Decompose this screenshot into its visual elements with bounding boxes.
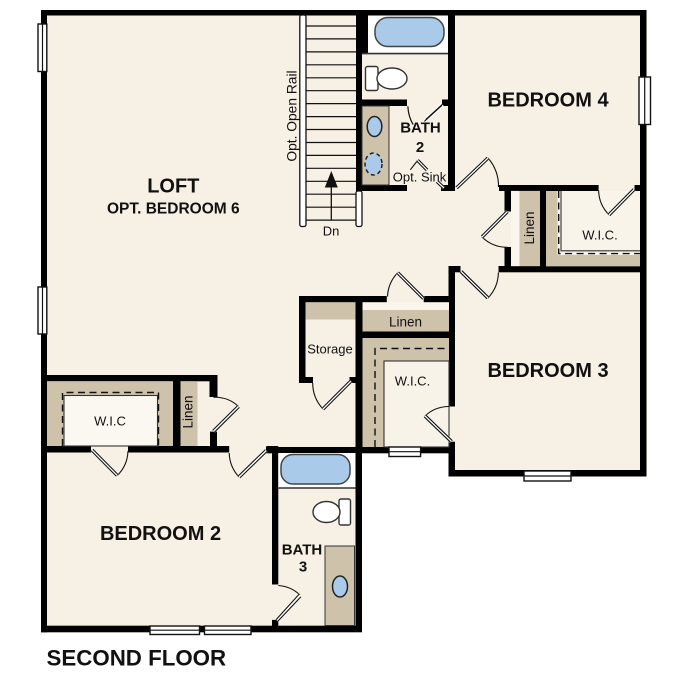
- svg-text:BEDROOM 4: BEDROOM 4: [487, 90, 609, 112]
- svg-text:Linen: Linen: [181, 395, 196, 428]
- svg-text:Linen: Linen: [522, 211, 537, 244]
- svg-text:BATH: BATH: [282, 541, 323, 558]
- svg-text:W.I.C: W.I.C: [94, 414, 126, 429]
- svg-text:SECOND FLOOR: SECOND FLOOR: [47, 646, 227, 671]
- svg-text:W.I.C.: W.I.C.: [582, 228, 617, 243]
- svg-text:Linen: Linen: [389, 314, 422, 329]
- svg-text:BEDROOM 2: BEDROOM 2: [100, 523, 221, 545]
- svg-text:BATH: BATH: [400, 119, 441, 136]
- svg-text:Dn: Dn: [323, 224, 340, 239]
- svg-text:W.I.C.: W.I.C.: [395, 374, 430, 389]
- svg-text:LOFT: LOFT: [147, 175, 199, 197]
- svg-text:2: 2: [416, 139, 424, 156]
- svg-text:3: 3: [299, 558, 307, 575]
- svg-text:BEDROOM 3: BEDROOM 3: [487, 360, 608, 382]
- svg-text:Storage: Storage: [307, 342, 353, 357]
- svg-text:OPT. BEDROOM 6: OPT. BEDROOM 6: [107, 201, 240, 218]
- svg-text:Opt. Sink: Opt. Sink: [393, 170, 447, 185]
- svg-text:Opt. Open Rail: Opt. Open Rail: [284, 70, 299, 161]
